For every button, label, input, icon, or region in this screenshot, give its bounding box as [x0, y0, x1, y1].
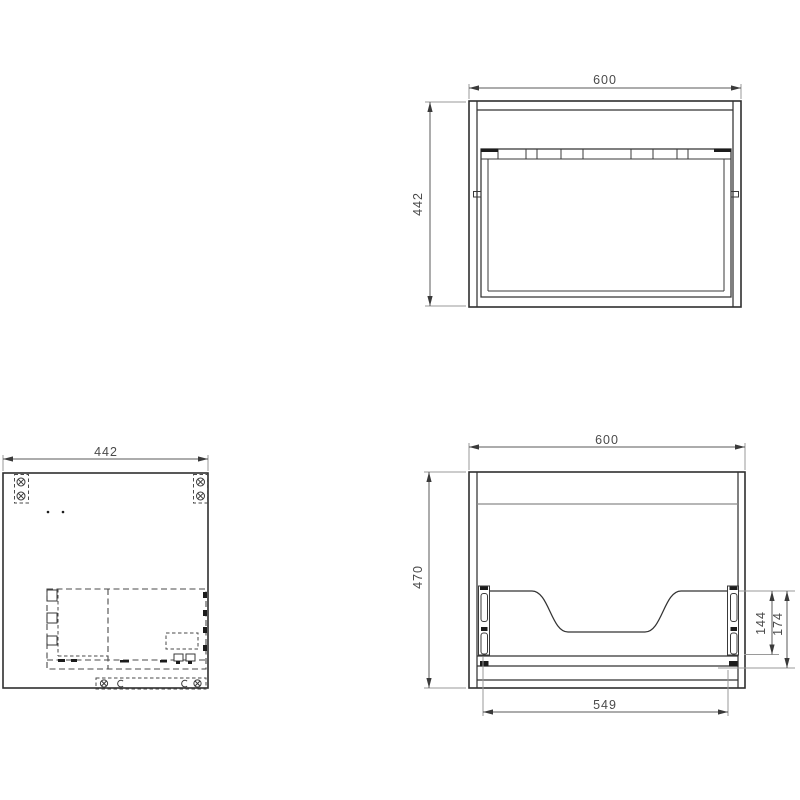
side-view-top-right-fitting: [194, 475, 208, 504]
dim-label-rail-offset: 174: [772, 612, 785, 636]
dim-label-side-view-depth: 442: [94, 446, 118, 459]
dimension-top-view-depth: [425, 102, 466, 306]
side-view-top-left-fitting: [15, 475, 29, 504]
side-view-slide-clips: [47, 590, 57, 645]
side-view-dowel-marks: [47, 511, 65, 514]
top-view-left-clip: [481, 149, 498, 153]
front-view-left-slide-rail: [479, 586, 490, 667]
dim-label-top-view-width: 600: [593, 74, 617, 87]
dimension-front-view-height: [424, 472, 466, 688]
cam-lock-symbol: [118, 680, 123, 687]
front-view-drawing: [424, 443, 795, 716]
front-view-back-panel-cutout: [489, 591, 727, 632]
front-view-bottom-panel: [477, 656, 738, 680]
top-view-cabinet-outline: [469, 101, 741, 307]
top-view-right-clip: [714, 149, 731, 153]
dim-label-drawer-width: 549: [593, 699, 617, 712]
top-view-rail-segments: [481, 149, 731, 160]
top-view-side-notches: [474, 192, 739, 198]
cad-drawing-canvas: 600 442 442 600 470 144 174 549: [0, 0, 800, 800]
dim-label-front-view-height: 470: [412, 565, 425, 589]
cam-lock-symbol: [182, 680, 187, 687]
dim-label-front-view-width: 600: [595, 434, 619, 447]
dimension-front-view-width: [469, 443, 745, 470]
front-view-right-slide-rail: [728, 586, 739, 667]
side-view-hidden-bracket: [166, 633, 198, 649]
side-view-drawing: [3, 455, 208, 689]
top-view-side-panels: [477, 101, 733, 307]
dim-label-rail-length: 144: [755, 611, 768, 635]
technical-drawing: [0, 0, 800, 800]
dim-label-top-view-depth: 442: [412, 192, 425, 216]
top-view-drawer-box: [481, 149, 731, 297]
top-view-drawing: [425, 84, 741, 307]
